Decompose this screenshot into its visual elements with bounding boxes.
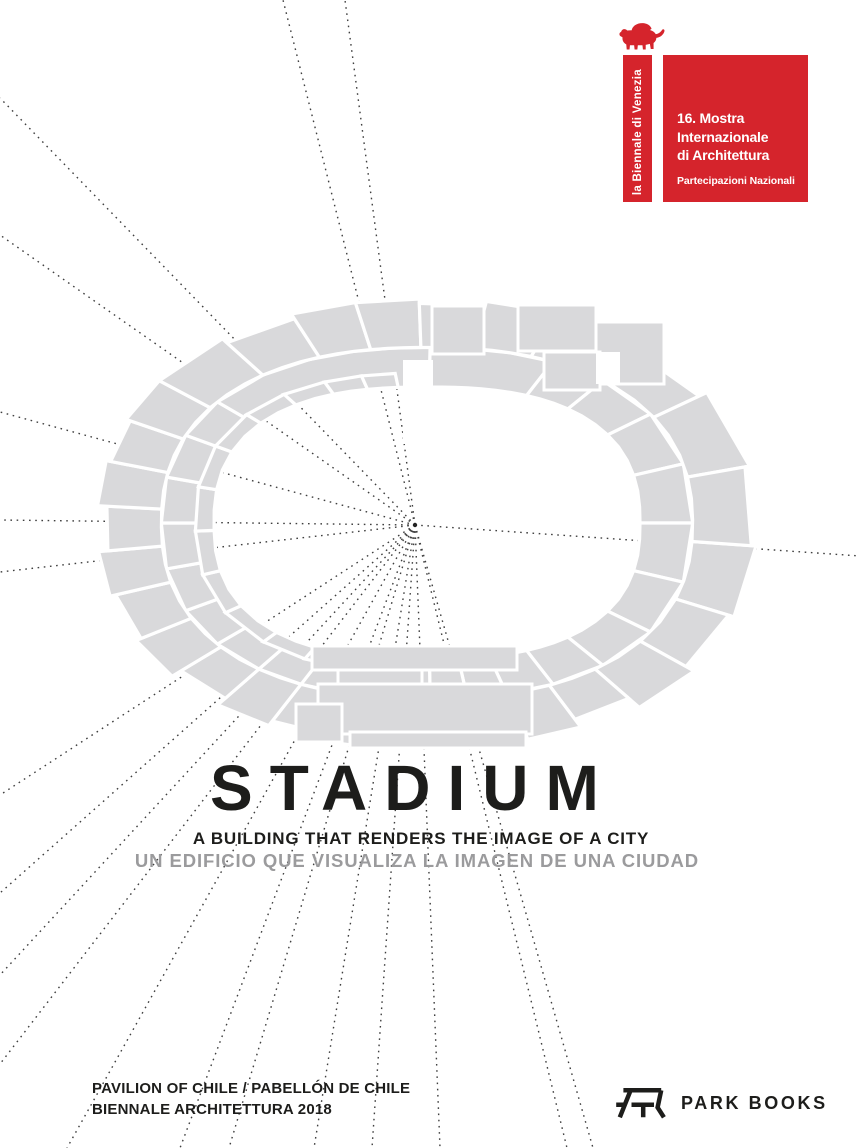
- footer-biennale-line: BIENNALE ARCHITETTURA 2018: [92, 1099, 410, 1120]
- subtitle-english: A BUILDING THAT RENDERS THE IMAGE OF A C…: [0, 829, 851, 849]
- biennale-square: 16. Mostra Internazionale di Architettur…: [663, 55, 808, 202]
- biennale-vertical-bar: la Biennale di Venezia: [623, 55, 652, 202]
- mostra-line-3: di Architettura: [677, 146, 800, 165]
- biennale-vertical-label: la Biennale di Venezia: [632, 69, 644, 195]
- footer-pavilion-line: PAVILION OF CHILE / PABELLÓN DE CHILE: [92, 1078, 410, 1099]
- park-bench-icon: [612, 1084, 669, 1120]
- book-cover: la Biennale di Venezia 16. Mostra Intern…: [0, 0, 860, 1148]
- footer-credits: PAVILION OF CHILE / PABELLÓN DE CHILE BI…: [92, 1078, 410, 1120]
- subtitle-spanish: UN EDIFICIO QUE VISUALIZA LA IMAGEN DE U…: [0, 850, 847, 872]
- bench-strokes: [616, 1090, 664, 1117]
- cover-title: STADIUM: [210, 756, 616, 820]
- lion-body: [619, 29, 664, 49]
- park-books-label: PARK BOOKS: [681, 1093, 828, 1114]
- stadium-ring: [98, 299, 757, 748]
- mostra-line-2: Internazionale: [677, 128, 800, 147]
- mostra-line-1: 16. Mostra: [677, 109, 800, 128]
- partecipazioni-label: Partecipazioni Nazionali: [677, 175, 800, 187]
- biennale-lion-icon: [617, 21, 667, 52]
